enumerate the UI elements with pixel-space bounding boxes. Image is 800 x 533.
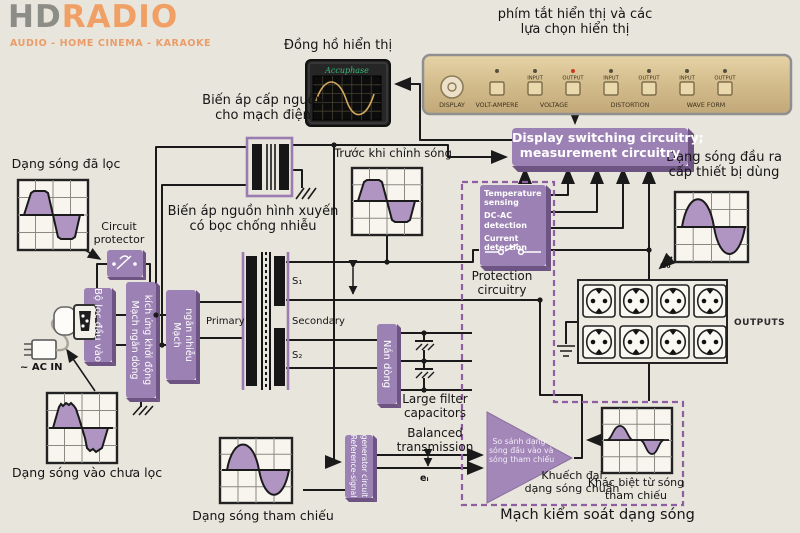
plug-head — [54, 307, 76, 335]
logo-radio: RADIO — [62, 0, 178, 35]
before-correction-label: Trước khi chỉnh sóng — [334, 147, 452, 161]
ac-in-label: ~ AC IN — [20, 362, 80, 374]
scope-reference — [220, 438, 292, 503]
main-transformer — [243, 252, 288, 390]
noise-label-1: Mạch — [171, 322, 182, 347]
outputs-label: OUTPUTS — [734, 318, 785, 328]
voltage-input-button — [528, 82, 542, 95]
meter-brand: Accuphase — [324, 66, 369, 75]
group-label: WAVE FORM — [687, 102, 725, 109]
group-label: VOLTAGE — [540, 102, 568, 109]
refgen-label-1: Reference-signal — [349, 435, 358, 498]
scope-difference — [602, 408, 672, 473]
logo-hd: HD — [8, 0, 62, 35]
volt-ampere-button — [490, 82, 504, 95]
refgen-label-2: generator circuit — [360, 435, 369, 498]
waveform-control-label: Mạch kiểm soát dạng sóng — [500, 507, 695, 524]
waveform-input-button — [680, 82, 694, 95]
scope-filtered — [18, 180, 88, 250]
waveform-output-button — [718, 82, 732, 95]
front-panel: INPUT OUTPUT INPUT OUTPUT INPUT OUTPUT D… — [423, 55, 791, 114]
btn-top-label: OUTPUT — [714, 76, 736, 82]
noise-label-2: ngăn nhiễu — [183, 308, 194, 361]
s2-label: S₂ — [292, 350, 302, 361]
filtered-wave-label: Dạng sóng đã lọc — [10, 157, 122, 172]
display-knob[interactable] — [441, 76, 463, 98]
red-led — [571, 69, 575, 73]
inrush-label-2: kích ứng khởi động — [142, 295, 153, 385]
unfiltered-wave-label: Dạng sóng vào chưa lọc — [12, 466, 157, 481]
sensing-label: Temperature sensing DC-AC detection Curr… — [484, 189, 544, 256]
distortion-output-button — [642, 82, 656, 95]
rectifier-label: Nắn dòng — [381, 340, 394, 388]
input-filter-label: Bộ lọc đầu vào — [92, 288, 104, 362]
secondary-label: Secondary — [292, 316, 345, 327]
display-knob-label: DISPLAY — [439, 102, 465, 109]
main-transformer-label: Biến áp nguồn hình xuyếncó bọc chống nhi… — [163, 204, 343, 235]
primary-label: Primary — [206, 316, 245, 327]
diagram-canvas: { "logo": {"hd": "HD", "radio": "RADIO",… — [0, 0, 800, 533]
supply-transformer — [247, 138, 292, 196]
difference-label: Khác biệt từ sóngtham chiếu — [586, 477, 686, 503]
distortion-input-button — [604, 82, 618, 95]
group-label: DISTORTION — [611, 102, 650, 109]
large-filter-caps-label: Large filtercapacitors — [392, 392, 478, 420]
e0-label: e₀ — [660, 260, 671, 271]
btn-top-label: INPUT — [603, 76, 619, 82]
comparator-label: So sánh dạngsóng đầu vào vàsóng tham chi… — [489, 437, 549, 465]
inrush-label-1: Mạch ngăn dòng — [129, 300, 140, 379]
display-switching-label: Display switching circuitry;measurement … — [512, 131, 688, 161]
supply-transformer-label: Biến áp cấp nguồncho mạch điện — [192, 93, 334, 124]
scope-unfiltered — [47, 393, 117, 463]
scope-output — [675, 192, 748, 262]
voltage-output-button — [566, 82, 580, 95]
btn-top-label: OUTPUT — [562, 76, 584, 82]
ei-label: eᵢ — [420, 473, 429, 484]
group-label: VOLT-AMPERE — [475, 102, 518, 109]
balanced-transmission-label: Balancedtransmission — [392, 426, 478, 454]
meter-title: Đồng hồ hiển thị — [282, 38, 394, 53]
protection-circuitry-label: Protectioncircuitry — [452, 269, 552, 297]
btn-top-label: INPUT — [527, 76, 543, 82]
scope-before-correction — [352, 168, 422, 235]
btn-top-label: INPUT — [679, 76, 695, 82]
circuit-protector-label: Circuitprotector — [84, 221, 154, 247]
btn-top-label: OUTPUT — [638, 76, 660, 82]
s1-label: S₁ — [292, 276, 302, 287]
outputs-block — [578, 280, 727, 363]
panel-title: phím tắt hiển thị và cáclựa chọn hiển th… — [455, 7, 695, 38]
hdradio-logo: HDRADIO — [8, 2, 178, 33]
reference-wave-label: Dạng sóng tham chiếu — [188, 509, 338, 524]
logo-tagline: AUDIO - HOME CINEMA - KARAOKE — [10, 38, 211, 49]
